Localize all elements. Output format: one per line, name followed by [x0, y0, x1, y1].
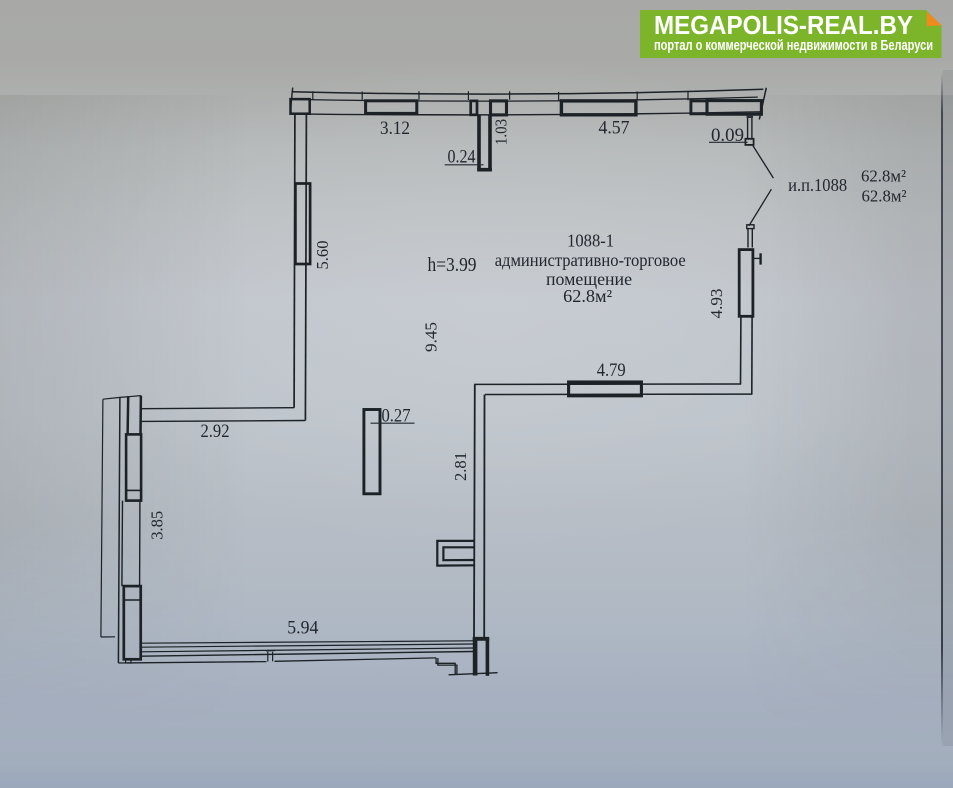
svg-text:4.57: 4.57 — [599, 118, 630, 139]
svg-text:1.03: 1.03 — [492, 119, 511, 145]
svg-text:2.81: 2.81 — [451, 452, 470, 481]
svg-text:3.12: 3.12 — [380, 118, 410, 139]
svg-text:62.8м²: 62.8м² — [861, 167, 906, 186]
svg-text:9.45: 9.45 — [422, 322, 441, 352]
svg-text:5.60: 5.60 — [313, 241, 332, 270]
svg-text:MEGAPOLIS-REAL.BY: MEGAPOLIS-REAL.BY — [654, 12, 913, 40]
svg-text:1088-1: 1088-1 — [567, 231, 614, 251]
svg-text:5.94: 5.94 — [287, 618, 318, 639]
svg-text:портал о коммерческой недвижим: портал о коммерческой недвижимости в Бел… — [654, 38, 933, 54]
svg-text:административно-торговое: административно-торговое — [495, 250, 686, 270]
svg-text:3.85: 3.85 — [148, 511, 167, 540]
svg-text:4.93: 4.93 — [707, 289, 726, 319]
svg-text:2.92: 2.92 — [201, 421, 230, 442]
svg-text:62.8м²: 62.8м² — [862, 187, 907, 206]
svg-text:62.8м²: 62.8м² — [563, 286, 612, 306]
svg-text:h=3.99: h=3.99 — [428, 255, 477, 276]
svg-text:и.п.1088: и.п.1088 — [788, 175, 847, 195]
svg-text:4.79: 4.79 — [597, 360, 626, 381]
